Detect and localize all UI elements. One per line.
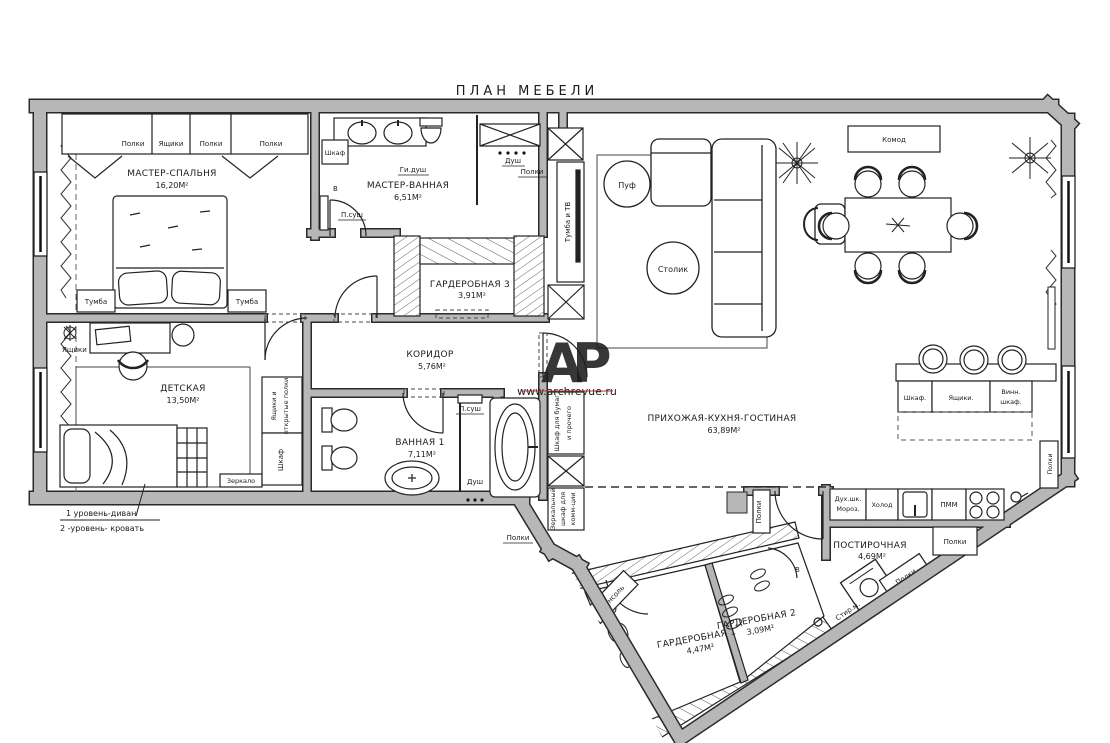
nightstand-label: Тумба <box>235 298 258 306</box>
drawers-label: Ящики <box>62 346 87 354</box>
room-label: ВАННАЯ 1 <box>395 438 444 448</box>
pillow <box>118 270 168 305</box>
room-area: 63,89М² <box>707 426 740 435</box>
shower-label: Душ <box>467 478 483 486</box>
freezer-label: Мороз. <box>836 505 859 513</box>
paper-cabinet-label: Шкаф для бумаг <box>553 394 561 452</box>
room-label: ДЕТСКАЯ <box>160 384 205 394</box>
toilet-tank <box>420 118 442 126</box>
tv-cabinet-label: Тумба и ТВ <box>564 202 572 244</box>
laptop-icon <box>95 326 130 344</box>
stool <box>172 324 194 346</box>
pot-filler-icon <box>1011 492 1021 502</box>
floor-plan-page: ПЛАН МЕБЕЛИ ГАРДЕРОБНАЯ 1 4,47М² <box>0 0 1110 743</box>
master-bath: Шкаф Ги.душ МАСТЕР-ВАННАЯ 6,51М² П.суш Д… <box>320 115 547 230</box>
watermark: А Р www.archrevue.ru <box>517 332 617 398</box>
room-label: МАСТЕР-СПАЛЬНЯ <box>127 169 216 179</box>
shelving-label: Ящики и <box>270 391 278 420</box>
note-line-2: 2 -уровень- кровать <box>60 524 144 533</box>
nightstand-label: Тумба <box>84 298 107 306</box>
room-label: ПОСТИРОЧНАЯ <box>833 541 907 551</box>
wine-cabinet <box>990 381 1032 412</box>
room-area: 4,69М² <box>858 552 886 561</box>
wardrobe-section-label: Ящики <box>159 140 184 148</box>
entry-shelf-label: Полки <box>755 501 763 524</box>
plant-icon <box>1009 137 1051 179</box>
room-area: 6,51М² <box>394 193 422 202</box>
mirror-cabinet-label: Зеркальный <box>549 488 557 530</box>
wardrobe-section-label: Полки <box>200 140 223 148</box>
shelving-label: открытые полки <box>282 378 290 434</box>
dishwasher-label: ПММ <box>940 501 957 509</box>
v-mark: В <box>333 185 338 193</box>
bath-1: ВАННАЯ 1 7,11М² П.суш Душ Полки <box>322 395 540 543</box>
note-line-1: 1 уровень-диван <box>66 509 136 518</box>
mirror-cabinet-label: комм-ции <box>569 493 577 526</box>
towel-dryer <box>320 196 328 230</box>
master-suite-door-arc <box>335 276 377 318</box>
towel-dryer <box>458 395 482 403</box>
wine-cabinet-label: шкаф. <box>1000 398 1021 406</box>
mirror-label: Зеркало <box>227 477 255 485</box>
page-title: ПЛАН МЕБЕЛИ <box>456 84 598 99</box>
drawers-label: Ящики. <box>948 394 973 402</box>
dining-chair <box>855 167 881 197</box>
kitchen: Шкаф. Ящики. Винн. шкаф. Полки Дух.шк. М… <box>830 345 1058 520</box>
wardrobe-3: ГАРДЕРОБНАЯ 3 3,91М² <box>394 236 544 316</box>
closet-label: Шкаф <box>277 449 285 471</box>
cabinet-label: Шкаф <box>325 149 346 157</box>
floor-plan-drawing: ПЛАН МЕБЕЛИ ГАРДЕРОБНАЯ 1 4,47М² <box>0 0 1110 743</box>
paper-cabinet-label: и прочего <box>565 406 573 440</box>
shelves-label: Полки <box>507 534 530 542</box>
dining-chair <box>819 213 849 239</box>
pouf-label: Пуф <box>618 181 636 190</box>
sofa-section <box>651 139 711 206</box>
room-area: 16,20М² <box>155 181 188 190</box>
kitchen-work-zone <box>898 412 1032 440</box>
mirror-cabinet-label: шкаф для <box>559 492 567 526</box>
entry-column <box>727 492 747 513</box>
room-area: 5,76М² <box>418 362 446 371</box>
room-label: ПРИХОЖАЯ-КУХНЯ-ГОСТИНАЯ <box>647 414 796 424</box>
fridge-label: Холод <box>871 501 893 509</box>
master-bedroom: Полки Ящики Полки Полки МАСТЕР-СПАЛЬНЯ 1… <box>62 114 308 312</box>
towel-dryer-label: П.суш <box>459 405 481 413</box>
pillow <box>64 429 90 483</box>
toilet <box>331 409 357 431</box>
shelves-label: Полки <box>521 168 544 176</box>
room-label: ГАРДЕРОБНАЯ 3 <box>430 280 510 290</box>
bathtub-inner <box>502 413 528 481</box>
room-area: 13,50М² <box>166 396 199 405</box>
laundry-shelves-label: Полки <box>944 538 967 546</box>
room-area: 7,11М² <box>408 450 436 459</box>
oven-label: Дух.шк. <box>835 495 862 503</box>
dining-chair <box>855 253 881 283</box>
hanger-icon <box>222 156 278 178</box>
dining-chair <box>899 253 925 283</box>
central-strip <box>548 128 584 530</box>
dining-chair <box>947 213 977 239</box>
room-area: 3,91М² <box>458 291 486 300</box>
bedroom-wardrobe <box>62 114 308 154</box>
dining-chair <box>899 167 925 197</box>
kids-door-arc <box>265 318 307 360</box>
sofa <box>712 139 776 337</box>
room-label: МАСТЕР-ВАННАЯ <box>367 181 449 191</box>
coffee-table-label: Столик <box>658 265 688 274</box>
tv-icon <box>576 170 580 262</box>
bath1-door-arc <box>403 393 443 433</box>
cabinet-label: Шкаф. <box>904 394 926 402</box>
v-mark: В <box>795 566 800 574</box>
wardrobe-section-label: Полки <box>260 140 283 148</box>
kids-room: Ящики ДЕТСКАЯ 13,50М² Зеркало Ящики и от… <box>60 323 302 487</box>
hygiene-shower-label: Ги.душ <box>400 166 426 174</box>
sideboard-label: Комод <box>882 136 906 144</box>
plant-icon <box>776 142 818 184</box>
wardrobe-section-label: Полки <box>122 140 145 148</box>
towel-dryer-label: П.суш <box>341 211 363 219</box>
bidet <box>331 447 357 469</box>
tall-shelf-label: Полки <box>1046 453 1054 474</box>
room-label: КОРИДОР <box>406 350 454 360</box>
shower-label: Душ <box>505 157 521 165</box>
wine-cabinet-label: Винн. <box>1001 388 1020 396</box>
pillow <box>171 271 221 305</box>
